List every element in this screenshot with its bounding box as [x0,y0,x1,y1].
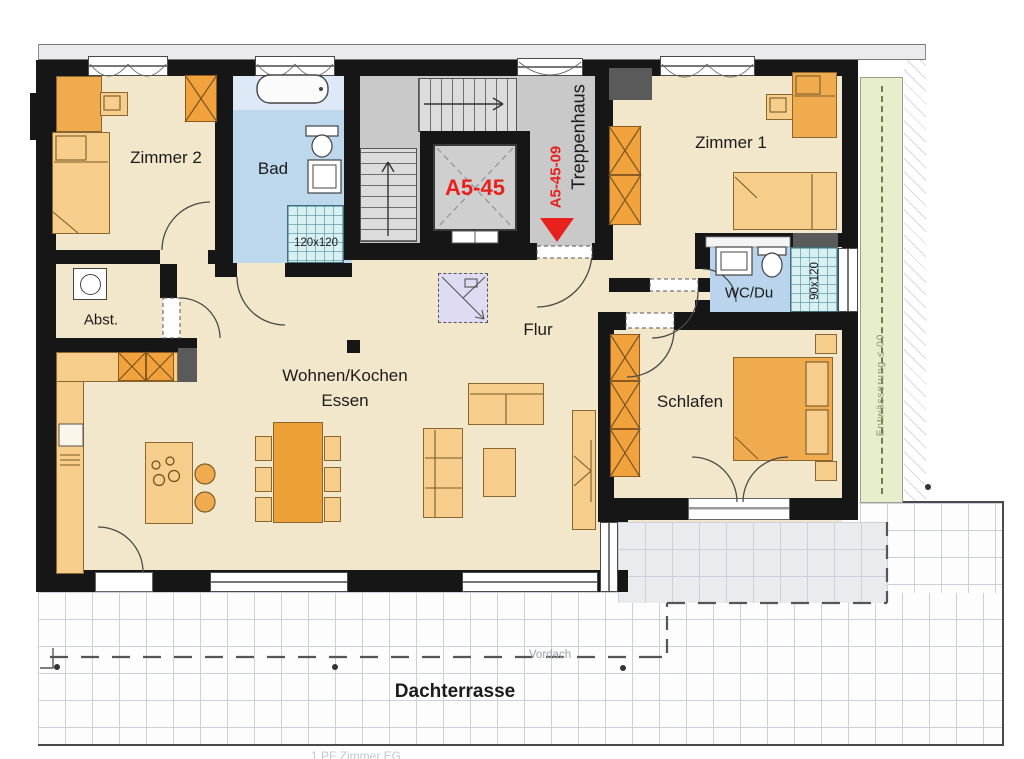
reference-point-marker [347,340,360,353]
cabinet-x-schlafen-a [610,334,640,381]
nightstand-schlafen-b [815,461,837,481]
living-floor-south [56,522,600,572]
room-label-bad: Bad [258,159,288,179]
wall-zimmer2-bottom-a [36,250,160,264]
washing-machine-drum [80,274,101,295]
window-living-corner [600,522,618,592]
coffee-table [483,448,516,497]
wardrobe-zimmer2 [56,76,102,132]
window-wc-shower [838,248,858,312]
wall-bad-left [215,60,233,277]
window-living-1 [210,572,348,592]
dining-chair-6 [324,497,341,522]
wall-schlafen-top-a [598,312,626,330]
terrace-edge-top-right [903,501,1004,503]
bad-floor-upper [233,72,352,110]
room-label-treppenhaus: Treppenhaus [569,84,590,189]
sofa-three-seat [423,428,463,518]
wall-schlafen-top-b [674,312,858,330]
sofa-two-seat [468,383,544,425]
shower-bad [287,205,344,263]
installation-shaft [438,273,488,323]
room-label-flur: Flur [523,320,552,340]
cabinet-x-schlafen-b [610,381,640,429]
terrace-edge-right [1002,501,1004,746]
wall-wc-left-b [695,300,710,312]
bed2-zimmer1 [733,172,837,230]
hatch-column [904,60,926,503]
terrace-door-sill-living [95,572,153,592]
dim-label-shower-wc: 90x120 [809,262,821,300]
terrace-vordach-zone [618,522,887,603]
wall-bad-bottom-b [285,263,352,277]
wall-abst-right-a [160,264,177,298]
stairs-lower-flight [360,148,417,242]
terrace-label: Dachterrasse [395,681,515,703]
wall-bad-bottom-a [215,263,237,277]
dim-label-shower-bad: 120x120 [294,237,338,249]
stairs-upper-flight [418,78,517,132]
dining-table [273,422,323,523]
room-label-zimmer2: Zimmer 2 [130,148,202,168]
room-label-abst: Abst. [84,312,118,329]
wall-stair-left [344,60,360,253]
room-label-schlafen: Schlafen [657,392,723,412]
bed-zimmer2 [52,132,110,234]
bed1-zimmer1 [792,72,837,138]
washing-machine-icon [73,268,107,300]
window-bad [255,56,335,76]
wall-zimmer1-bottom-a [609,278,650,292]
kitchen-counter-left [56,352,84,574]
dining-chair-4 [324,436,341,461]
desk-zimmer1 [766,94,793,120]
shaft-block-wc [793,233,838,247]
green-roof-strip [860,77,903,503]
dining-chair-2 [255,467,272,492]
window-zimmer2 [88,56,168,76]
wall-kitchen-top [36,338,197,352]
terrace-bottom [38,592,1004,745]
room-label-wohnen-kochen: Wohnen/Kochen [282,366,407,386]
desk-zimmer2 [100,92,128,116]
green-strip-note: Entwässerung ≤ 00 [876,334,887,437]
tv-sideboard [572,410,596,530]
cabinet-x-zimmer2 [185,75,217,122]
elevator-unit-label: A5-45 [445,175,505,201]
cabinet-x-zimmer1-a [609,126,641,175]
vordach-label: Vordach [529,649,571,661]
cabinet-x-schlafen-c [610,429,640,477]
room-label-zimmer1: Zimmer 1 [695,133,767,153]
wall-zimmer1-bottom-b [698,278,710,292]
roof-edge-strip [38,44,926,60]
cabinet-x-zimmer1-b [609,175,641,225]
dining-chair-3 [255,497,272,522]
window-zimmer1 [660,56,755,76]
dining-chair-5 [324,467,341,492]
room-label-essen: Essen [321,391,368,411]
terrace-edge-bottom [38,744,1004,746]
terrace-door-sill-schlafen [688,498,790,520]
shaft-block-kitchen [178,348,197,382]
room-label-wc-du: WC/Du [725,285,773,302]
wall-stair-bottom-a [344,243,537,260]
wc-floor [710,247,790,312]
floor-plan: Zimmer 2 Bad 120x120 A5-45 A5-45-09 Trep… [0,0,1024,759]
window-treppenhaus [517,58,583,76]
nightstand-schlafen-a [815,334,837,354]
dining-chair-1 [255,436,272,461]
kitchen-tall-unit-b [146,352,174,381]
kitchen-island [145,442,193,524]
wall-corner-step [598,498,628,522]
wall-stair-bottom-b [592,243,613,260]
wall-wc-left-a [695,247,710,269]
bed-schlafen [733,357,833,461]
kitchen-tall-unit-a [118,352,146,381]
wall-zimmer2-bottom-b [208,250,233,264]
window-living-2 [462,572,598,592]
shaft-block-zimmer1 [609,68,652,100]
footer-note: 1 PF Zimmer EG [311,749,401,759]
unit-entrance-label: A5-45-09 [548,146,565,209]
